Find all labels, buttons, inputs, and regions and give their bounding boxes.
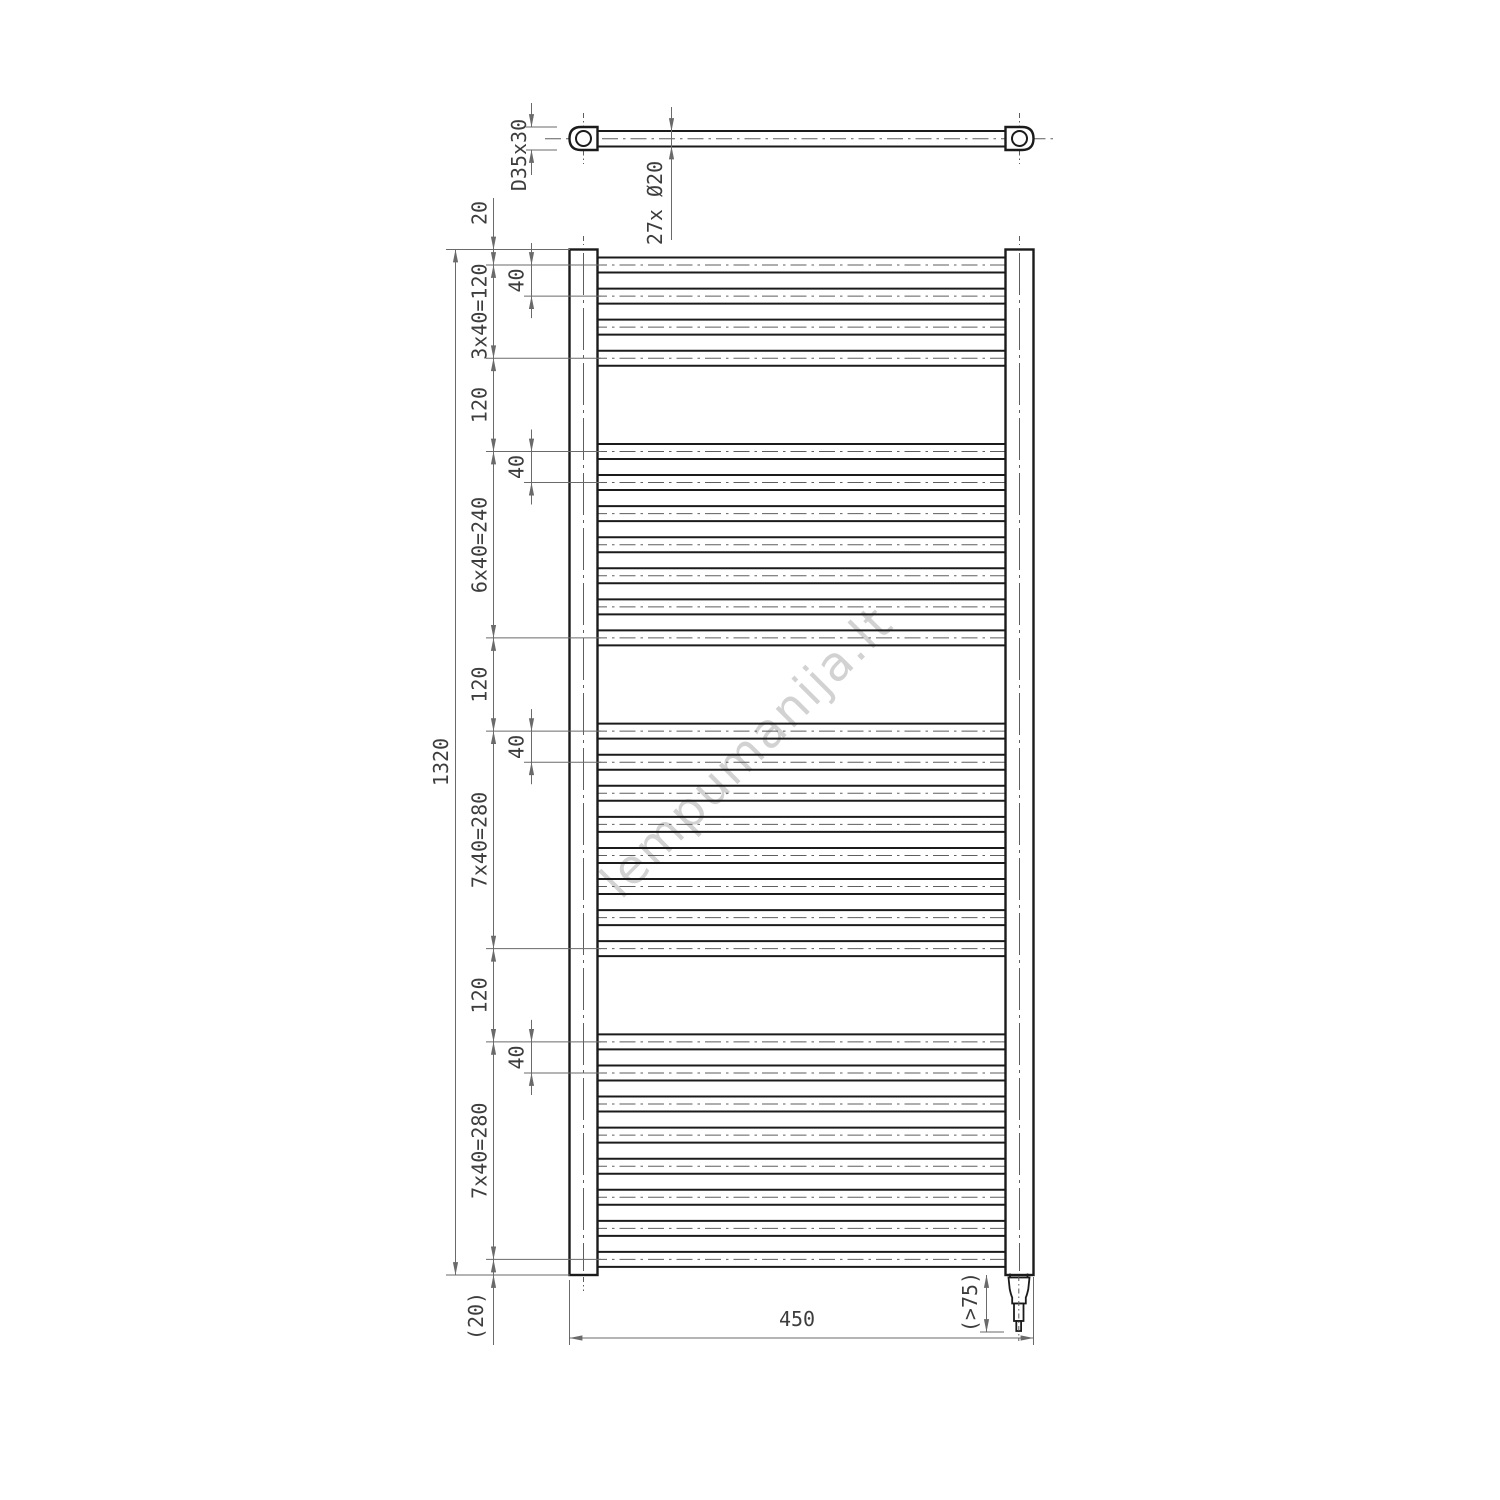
chain-label-120b: 120 [468,667,492,703]
heating-element [1009,1274,1030,1342]
dim-40-label-2: 40 [505,455,529,479]
chain-label-120a: 120 [468,387,492,423]
chain-label-7x40a: 7x40=280 [468,792,492,888]
dim-40-label-3: 40 [505,735,529,759]
dim-heater-clearance: (>75) [958,1272,1004,1332]
rung-tubes [591,258,1012,1267]
dim-profile: D35x30 [507,103,557,191]
technical-drawing: lempumanija.lt D35x30 27x Ø20 [0,0,1500,1500]
dim-tube-spec: 27x Ø20 [643,107,672,245]
chain-label-20: 20 [468,201,492,225]
dim-width-label: 450 [779,1307,815,1331]
dim-40-label-1: 40 [505,268,529,292]
chain-label-20-bottom: (20) [464,1292,488,1340]
chain-label-7x40b: 7x40=280 [468,1103,492,1199]
chain-label-3x40: 3x40=120 [468,263,492,359]
dim-profile-label: D35x30 [507,119,531,191]
chain-label-6x40: 6x40=240 [468,497,492,593]
drawing-page: lempumanija.lt D35x30 27x Ø20 [0,0,1500,1500]
chain-label-120c: 120 [468,977,492,1013]
dim-heater-clearance-label: (>75) [958,1272,982,1332]
front-view [570,236,1034,1341]
dim-total-height: 1320 [429,250,456,1276]
dim-tube-spec-label: 27x Ø20 [643,161,667,245]
top-view: D35x30 27x Ø20 [507,103,1056,245]
dim-total-height-label: 1320 [429,738,453,786]
dim-40-label-4: 40 [505,1045,529,1069]
